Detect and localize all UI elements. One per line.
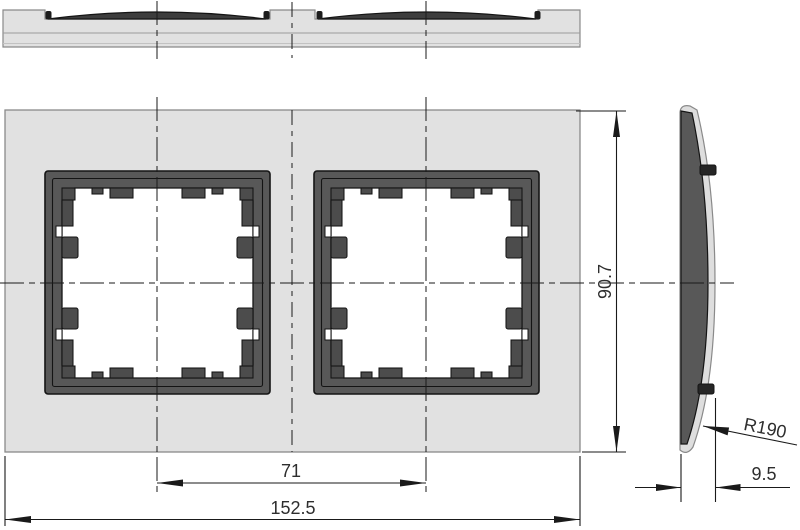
technical-drawing-2gang-frame: 152.5 71 90.7 9.5 R190 (0, 0, 800, 530)
dim-front-radius-label: R190 (742, 414, 788, 442)
top-view-clip (46, 11, 52, 20)
dim-overall-height: 90.7 (576, 111, 626, 452)
dim-overall-height-label: 90.7 (595, 264, 615, 299)
top-view-clip (264, 11, 270, 20)
cad-drawing-page: 152.5 71 90.7 9.5 R190 (0, 0, 800, 530)
dim-overall-width-label: 152.5 (270, 498, 315, 518)
side-view (680, 106, 716, 453)
dim-front-radius: R190 (703, 414, 797, 445)
dim-module-spacing: 71 (157, 461, 426, 487)
top-view-clip (535, 11, 541, 20)
top-view-clip (317, 11, 323, 20)
dim-depth-label: 9.5 (751, 464, 776, 484)
dim-module-spacing-label: 71 (281, 461, 301, 481)
side-clip-upper (700, 165, 716, 175)
top-view-curved-face-right (318, 12, 536, 19)
dim-depth: 9.5 (635, 398, 790, 502)
side-clip-lower (698, 384, 714, 394)
